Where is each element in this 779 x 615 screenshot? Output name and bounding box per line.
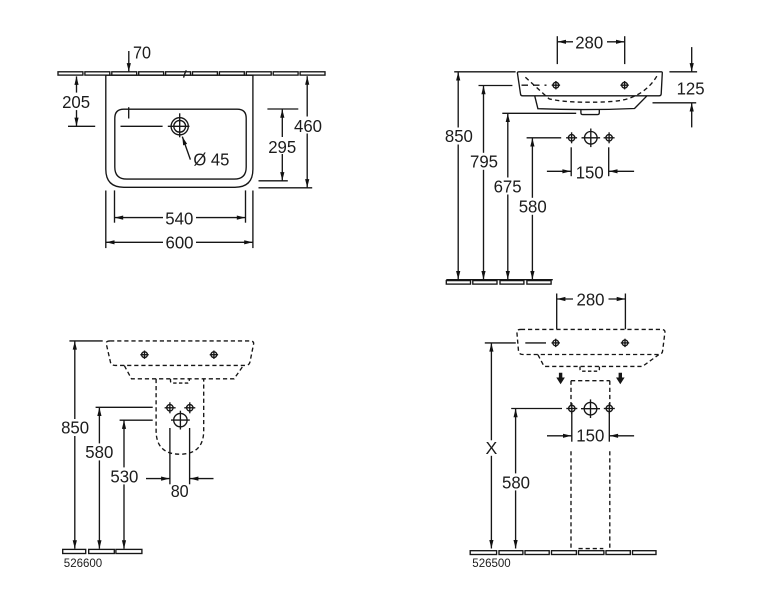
svg-text:580: 580 (502, 472, 530, 492)
svg-text:850: 850 (445, 126, 473, 146)
svg-text:795: 795 (470, 151, 498, 171)
svg-text:Ø 45: Ø 45 (193, 150, 229, 170)
svg-text:150: 150 (576, 163, 604, 183)
svg-text:580: 580 (519, 196, 547, 216)
svg-text:526600: 526600 (64, 558, 102, 570)
svg-text:540: 540 (165, 208, 193, 228)
svg-text:460: 460 (294, 116, 322, 136)
svg-text:295: 295 (268, 137, 296, 157)
svg-text:600: 600 (166, 233, 194, 253)
svg-text:526500: 526500 (472, 558, 510, 570)
svg-text:580: 580 (85, 442, 113, 462)
svg-text:205: 205 (62, 92, 90, 112)
svg-text:675: 675 (494, 176, 522, 196)
svg-text:850: 850 (61, 417, 89, 437)
svg-text:70: 70 (133, 43, 151, 63)
svg-text:530: 530 (110, 466, 138, 486)
svg-text:X: X (485, 438, 497, 458)
svg-text:80: 80 (171, 481, 189, 501)
svg-text:280: 280 (577, 290, 605, 310)
svg-text:125: 125 (677, 78, 705, 98)
svg-text:280: 280 (575, 33, 603, 53)
svg-text:150: 150 (576, 426, 604, 446)
